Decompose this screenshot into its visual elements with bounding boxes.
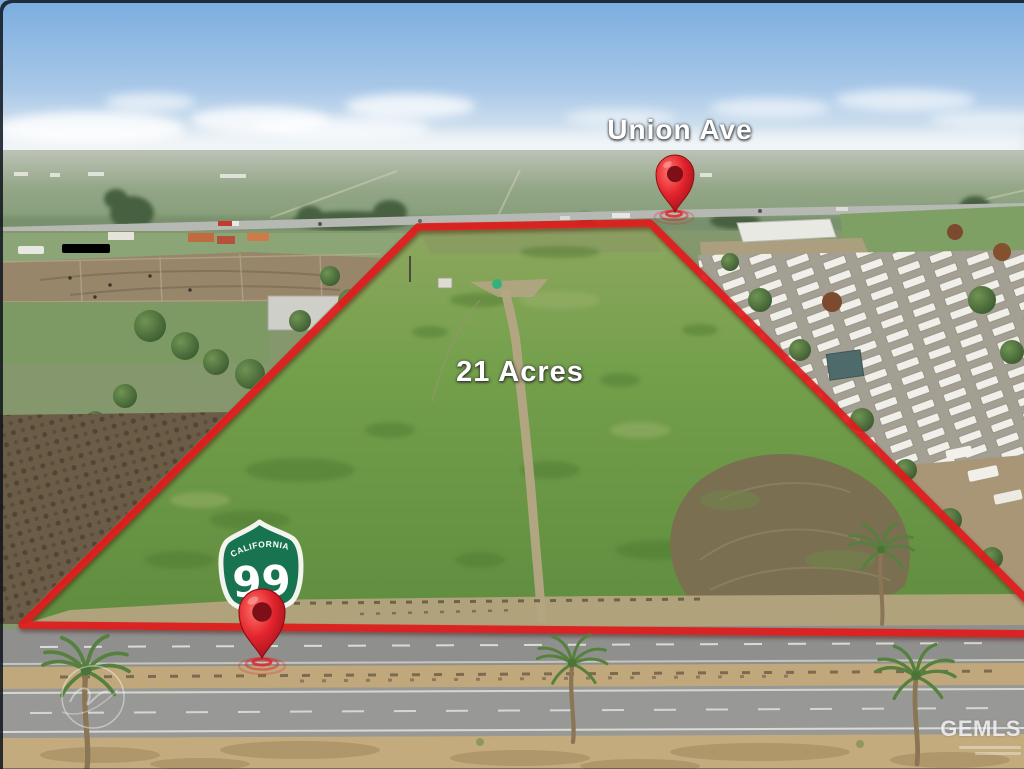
acreage-label: 21 Acres — [430, 356, 610, 389]
mls-watermark-subline2 — [975, 752, 1021, 755]
aerial-listing-photo: CALIFORNIA 99 Union Ave 21 Acres GEMLS — [0, 0, 1024, 769]
highway-99-roads — [0, 625, 1024, 769]
blue-tarp-rv — [826, 350, 863, 380]
street-label-union-ave: Union Ave — [595, 114, 765, 146]
utility-box — [438, 278, 452, 288]
green-dome — [492, 279, 502, 289]
mls-watermark: GEMLS — [931, 716, 1021, 755]
mls-watermark-text: GEMLS — [940, 716, 1021, 741]
mls-watermark-subline — [959, 746, 1021, 749]
